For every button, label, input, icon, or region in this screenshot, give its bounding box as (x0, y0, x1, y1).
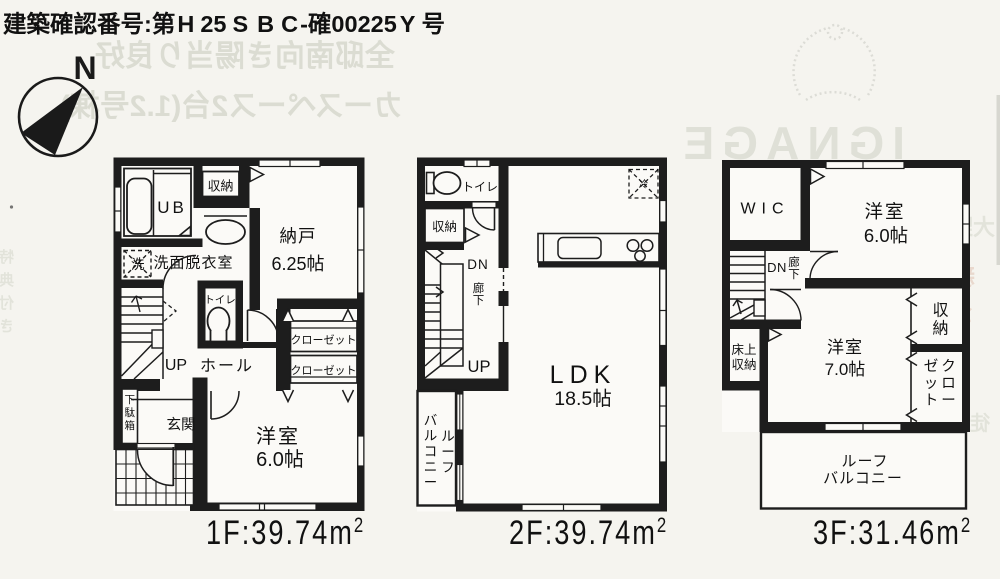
svg-text:フ: フ (441, 460, 455, 475)
svg-text:ルーフ: ルーフ (841, 453, 888, 470)
svg-text:LDK: LDK (550, 361, 617, 389)
svg-text:洗面脱衣室: 洗面脱衣室 (153, 255, 233, 272)
svg-text:UP: UP (468, 358, 491, 376)
svg-text:収納: 収納 (432, 220, 457, 234)
svg-text:ロ: ロ (941, 376, 956, 392)
svg-text:UP: UP (165, 357, 187, 374)
svg-text:下: 下 (473, 295, 485, 307)
svg-text:バ: バ (424, 413, 438, 428)
svg-text:バルコニー: バルコニー (823, 470, 903, 487)
svg-text:ニ: ニ (424, 460, 438, 475)
svg-text:冷: 冷 (639, 179, 649, 191)
svg-text:納: 納 (932, 320, 948, 338)
svg-text:収納: 収納 (207, 179, 233, 194)
svg-text:付: 付 (0, 294, 14, 312)
svg-text:ッ: ッ (924, 376, 939, 392)
svg-text:クローゼット: クローゼット (291, 364, 357, 377)
svg-text:廊: 廊 (788, 255, 800, 269)
svg-text:3F:31.46m2: 3F:31.46m2 (813, 513, 972, 552)
svg-text:建築確認番号:第H25SBC-確00225Y号: 建築確認番号:第H25SBC-確00225Y号 (3, 10, 445, 37)
svg-text:6.0帖: 6.0帖 (864, 225, 908, 246)
svg-text:クローゼット: クローゼット (291, 334, 357, 347)
svg-text:特: 特 (0, 248, 14, 266)
svg-text:洋室: 洋室 (827, 338, 863, 357)
svg-text:全邸南向き陽当り良好: 全邸南向き陽当り良好 (95, 39, 396, 73)
svg-text:カースペース2台(1.2号棟): カースペース2台(1.2号棟) (60, 89, 403, 123)
svg-text:ク: ク (941, 358, 956, 375)
svg-text:ル: ル (424, 429, 438, 444)
svg-text:N: N (73, 50, 96, 86)
svg-text:WIC: WIC (740, 201, 789, 218)
svg-text:トイレ: トイレ (462, 180, 498, 194)
svg-text:収: 収 (932, 302, 948, 320)
svg-text:ゼ: ゼ (924, 358, 939, 375)
svg-text:ー: ー (441, 445, 455, 460)
svg-text:床上: 床上 (731, 343, 756, 357)
svg-text:2F:39.74m2: 2F:39.74m2 (509, 513, 668, 552)
svg-text:6.0帖: 6.0帖 (256, 448, 304, 471)
svg-text:18.5帖: 18.5帖 (554, 388, 611, 410)
svg-text:7.0帖: 7.0帖 (825, 360, 866, 379)
svg-text:DN: DN (467, 257, 489, 272)
svg-text:玄関: 玄関 (167, 417, 196, 434)
svg-text:UB: UB (157, 198, 187, 217)
svg-text:1F:39.74m2: 1F:39.74m2 (206, 513, 365, 552)
svg-text:洗: 洗 (131, 257, 145, 272)
svg-text:き: き (0, 318, 14, 335)
svg-text:収納: 収納 (731, 358, 756, 372)
svg-text:廊: 廊 (473, 281, 485, 295)
svg-text:洋室: 洋室 (864, 201, 905, 222)
svg-text:典: 典 (0, 271, 14, 289)
svg-text:ホール: ホール (200, 358, 254, 375)
svg-text:納戸: 納戸 (280, 226, 317, 246)
svg-text:洋室: 洋室 (256, 425, 300, 448)
svg-text:ー: ー (424, 475, 438, 490)
svg-text:ー: ー (941, 393, 956, 409)
svg-text:箱: 箱 (125, 419, 136, 432)
svg-text:6.25帖: 6.25帖 (271, 254, 324, 274)
svg-text:トイレ: トイレ (204, 294, 236, 306)
svg-text:駄: 駄 (125, 406, 136, 419)
svg-text:ト: ト (924, 393, 939, 409)
svg-text:コ: コ (424, 444, 438, 459)
svg-text:DN: DN (767, 260, 787, 275)
svg-text:ル: ル (441, 429, 455, 444)
svg-text:下: 下 (788, 269, 800, 281)
